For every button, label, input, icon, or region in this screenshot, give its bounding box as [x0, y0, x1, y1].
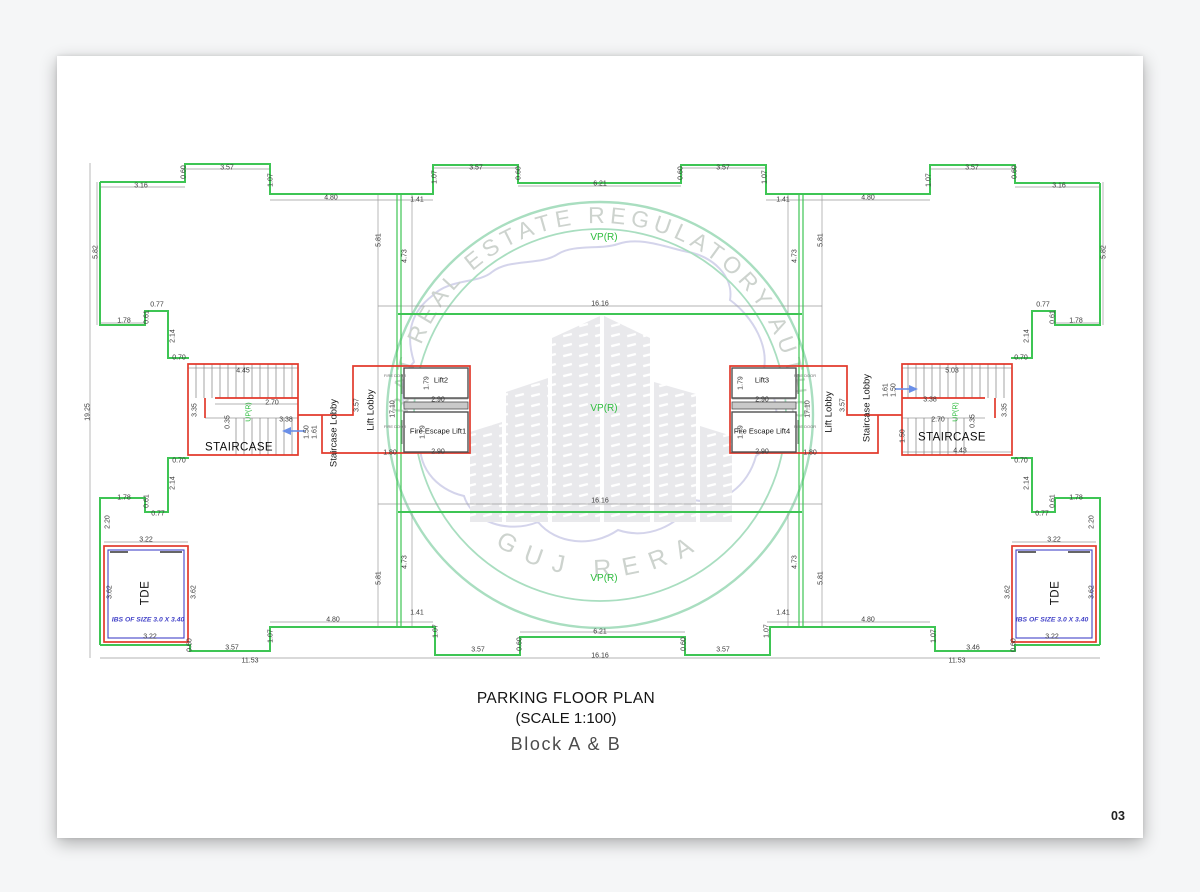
page-number: 03 [1111, 809, 1125, 823]
tde-right [1012, 546, 1096, 642]
seal-arc-text: GUJARAT REAL ESTATE REGULATORY AUTHORITY [0, 0, 813, 423]
drawing-title-block: PARKING FLOOR PLAN (SCALE 1:100) Block A… [477, 690, 655, 755]
drawing-scale: (SCALE 1:100) [477, 710, 655, 727]
staircase-right [902, 364, 1012, 455]
staircase-left [188, 364, 298, 455]
floor-plan-svg: GUJARAT REAL ESTATE REGULATORY AUTHORITY… [0, 0, 1200, 892]
seal-bottom-text: GUJ RERA [492, 526, 708, 583]
block-label: Block A & B [477, 734, 655, 755]
buildings-graphic [470, 316, 732, 522]
drawing-title: PARKING FLOOR PLAN [477, 690, 655, 708]
screenshot-stage: GUJARAT REAL ESTATE REGULATORY AUTHORITY… [0, 0, 1200, 892]
tde-left [104, 546, 188, 642]
